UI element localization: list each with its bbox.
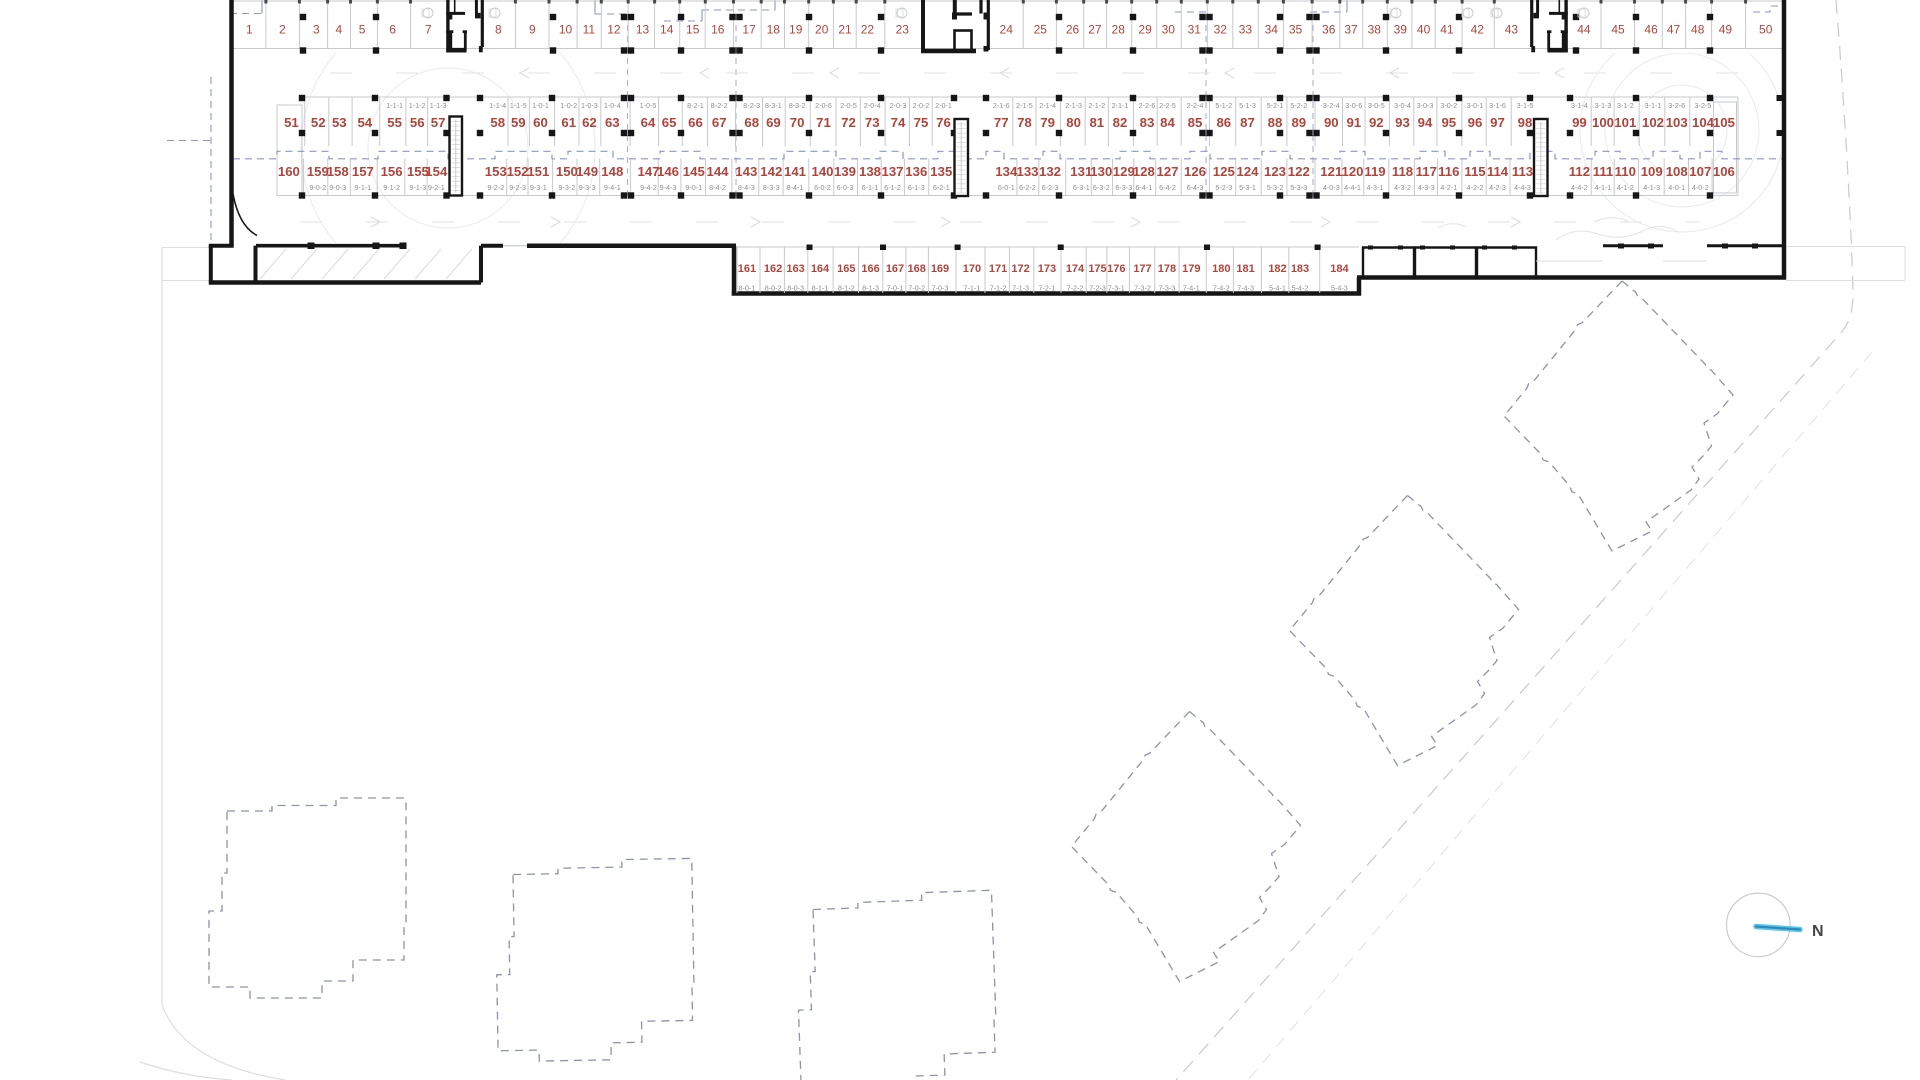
svg-text:131: 131 [1070, 164, 1092, 179]
svg-text:2-2-5: 2-2-5 [1159, 101, 1176, 110]
svg-text:160: 160 [278, 164, 300, 179]
svg-text:7-0-2: 7-0-2 [908, 284, 925, 293]
svg-text:3: 3 [313, 23, 320, 37]
svg-text:3-1-5: 3-1-5 [1517, 101, 1534, 110]
svg-text:5: 5 [359, 23, 366, 37]
svg-text:106: 106 [1713, 164, 1735, 179]
svg-text:102: 102 [1642, 115, 1664, 130]
svg-text:2-1-2: 2-1-2 [1088, 101, 1105, 110]
svg-text:49: 49 [1719, 23, 1733, 37]
svg-text:55: 55 [387, 115, 402, 130]
svg-text:1-1-1: 1-1-1 [386, 101, 403, 110]
svg-text:5-2-3: 5-2-3 [1215, 183, 1232, 192]
svg-text:27: 27 [1088, 23, 1102, 37]
svg-text:8-4-2: 8-4-2 [709, 183, 726, 192]
svg-text:101: 101 [1614, 115, 1636, 130]
svg-text:1-1-2: 1-1-2 [409, 101, 426, 110]
svg-text:7-4-2: 7-4-2 [1213, 284, 1230, 293]
svg-text:6-0-3: 6-0-3 [837, 183, 854, 192]
svg-text:8-0-3: 8-0-3 [787, 284, 804, 293]
svg-text:23: 23 [896, 23, 910, 37]
svg-text:6-3-3: 6-3-3 [1115, 183, 1132, 192]
svg-text:1-1-3: 1-1-3 [430, 101, 447, 110]
svg-text:76: 76 [936, 115, 951, 130]
svg-text:9-4-3: 9-4-3 [660, 183, 677, 192]
svg-text:149: 149 [576, 164, 598, 179]
svg-text:4-0-1: 4-0-1 [1668, 183, 1685, 192]
svg-text:3-1-1: 3-1-1 [1645, 101, 1662, 110]
svg-text:7-2-1: 7-2-1 [1039, 284, 1056, 293]
svg-text:13: 13 [636, 23, 650, 37]
svg-text:9: 9 [529, 23, 536, 37]
svg-text:1-0-1: 1-0-1 [532, 101, 549, 110]
svg-text:112: 112 [1569, 164, 1590, 179]
svg-text:26: 26 [1066, 23, 1080, 37]
svg-text:1: 1 [246, 23, 253, 37]
svg-text:68: 68 [744, 115, 759, 130]
svg-text:48: 48 [1691, 23, 1705, 37]
svg-text:59: 59 [511, 115, 526, 130]
svg-text:47: 47 [1667, 23, 1681, 37]
svg-text:97: 97 [1490, 115, 1505, 130]
svg-text:82: 82 [1113, 115, 1128, 130]
svg-text:9-0-1: 9-0-1 [685, 183, 702, 192]
svg-text:111: 111 [1593, 164, 1614, 179]
svg-text:9-2-3: 9-2-3 [509, 183, 526, 192]
svg-text:56: 56 [410, 115, 425, 130]
svg-text:29: 29 [1138, 23, 1152, 37]
svg-text:6-2-3: 6-2-3 [1042, 183, 1059, 192]
svg-text:156: 156 [381, 164, 403, 179]
svg-text:182: 182 [1268, 263, 1286, 275]
svg-text:113: 113 [1512, 164, 1533, 179]
svg-text:140: 140 [811, 164, 833, 179]
svg-text:2-0-3: 2-0-3 [890, 101, 907, 110]
svg-text:8-4-1: 8-4-1 [787, 183, 804, 192]
svg-text:65: 65 [662, 115, 677, 130]
svg-text:119: 119 [1364, 164, 1385, 179]
svg-text:46: 46 [1644, 23, 1658, 37]
svg-text:109: 109 [1641, 164, 1663, 179]
svg-text:5-1-3: 5-1-3 [1239, 101, 1256, 110]
svg-text:17: 17 [742, 23, 756, 37]
svg-text:2-1-1: 2-1-1 [1112, 101, 1129, 110]
svg-text:167: 167 [886, 263, 904, 275]
svg-text:6: 6 [389, 23, 396, 37]
svg-text:164: 164 [811, 263, 830, 275]
svg-text:121: 121 [1320, 164, 1342, 179]
svg-text:3-1-4: 3-1-4 [1571, 101, 1588, 110]
svg-text:114: 114 [1487, 164, 1509, 179]
svg-text:4-0-3: 4-0-3 [1323, 183, 1340, 192]
svg-text:7-1-1: 7-1-1 [964, 284, 981, 293]
svg-text:174: 174 [1066, 263, 1085, 275]
svg-text:12: 12 [607, 23, 621, 37]
svg-text:11: 11 [583, 23, 596, 37]
svg-text:39: 39 [1394, 23, 1408, 37]
svg-text:157: 157 [352, 164, 374, 179]
svg-text:8: 8 [495, 23, 502, 37]
svg-text:95: 95 [1441, 115, 1456, 130]
svg-text:5-3-2: 5-3-2 [1267, 183, 1284, 192]
svg-text:3-2-6: 3-2-6 [1668, 101, 1685, 110]
svg-text:128: 128 [1133, 164, 1155, 179]
svg-text:60: 60 [533, 115, 548, 130]
svg-text:58: 58 [490, 115, 505, 130]
svg-text:6-2-2: 6-2-2 [1019, 183, 1036, 192]
svg-text:9-2-2: 9-2-2 [487, 183, 504, 192]
svg-text:37: 37 [1344, 23, 1358, 37]
svg-text:179: 179 [1182, 263, 1200, 275]
svg-text:3-2-5: 3-2-5 [1695, 101, 1712, 110]
svg-text:57: 57 [431, 115, 446, 130]
svg-text:24: 24 [1000, 23, 1014, 37]
svg-text:116: 116 [1438, 164, 1459, 179]
svg-text:9-3-3: 9-3-3 [579, 183, 596, 192]
svg-text:7: 7 [425, 23, 432, 37]
svg-text:176: 176 [1107, 263, 1125, 275]
svg-text:5-2-2: 5-2-2 [1290, 101, 1307, 110]
svg-text:166: 166 [861, 263, 879, 275]
svg-text:8-3-3: 8-3-3 [763, 183, 780, 192]
svg-text:137: 137 [881, 164, 903, 179]
svg-text:52: 52 [311, 115, 326, 130]
svg-text:163: 163 [786, 263, 804, 275]
svg-text:110: 110 [1615, 164, 1636, 179]
svg-text:9-2-1: 9-2-1 [428, 183, 445, 192]
svg-text:5-3-1: 5-3-1 [1239, 183, 1256, 192]
svg-text:15: 15 [686, 23, 700, 37]
svg-text:153: 153 [485, 164, 507, 179]
svg-text:1-0-3: 1-0-3 [581, 101, 598, 110]
svg-text:7-1-3: 7-1-3 [1012, 284, 1029, 293]
svg-text:3-0-3: 3-0-3 [1417, 101, 1434, 110]
svg-text:108: 108 [1666, 164, 1688, 179]
svg-text:125: 125 [1213, 164, 1235, 179]
svg-text:127: 127 [1156, 164, 1178, 179]
svg-text:180: 180 [1212, 263, 1230, 275]
svg-text:85: 85 [1188, 115, 1203, 130]
svg-text:10: 10 [559, 23, 573, 37]
svg-text:2-1-5: 2-1-5 [1016, 101, 1033, 110]
svg-text:6-1-1: 6-1-1 [862, 183, 879, 192]
svg-text:66: 66 [688, 115, 703, 130]
svg-text:2-1-6: 2-1-6 [993, 101, 1010, 110]
svg-text:7-4-3: 7-4-3 [1237, 284, 1254, 293]
svg-text:9-0-3: 9-0-3 [329, 183, 346, 192]
svg-text:134: 134 [995, 164, 1018, 179]
svg-text:43: 43 [1505, 23, 1519, 37]
svg-text:7-2-2: 7-2-2 [1067, 284, 1084, 293]
svg-text:4-3-3: 4-3-3 [1418, 183, 1435, 192]
svg-text:99: 99 [1572, 115, 1587, 130]
svg-text:105: 105 [1713, 115, 1735, 130]
svg-text:104: 104 [1692, 115, 1715, 130]
svg-text:2-0-5: 2-0-5 [840, 101, 857, 110]
svg-text:2: 2 [279, 23, 286, 37]
svg-text:9-4-2: 9-4-2 [640, 183, 657, 192]
svg-text:4-4-3: 4-4-3 [1514, 183, 1531, 192]
svg-text:150: 150 [556, 164, 578, 179]
svg-text:7-1-2: 7-1-2 [990, 284, 1007, 293]
svg-text:8-2-3: 8-2-3 [743, 101, 760, 110]
svg-text:33: 33 [1239, 23, 1253, 37]
svg-text:6-0-2: 6-0-2 [814, 183, 831, 192]
svg-text:14: 14 [660, 23, 674, 37]
svg-text:64: 64 [641, 115, 656, 130]
svg-text:2-0-4: 2-0-4 [864, 101, 881, 110]
svg-text:93: 93 [1395, 115, 1410, 130]
svg-text:40: 40 [1417, 23, 1431, 37]
svg-text:80: 80 [1066, 115, 1081, 130]
svg-text:42: 42 [1471, 23, 1485, 37]
svg-text:136: 136 [905, 164, 927, 179]
svg-text:9-3-2: 9-3-2 [559, 183, 576, 192]
svg-text:120: 120 [1341, 164, 1363, 179]
svg-text:175: 175 [1088, 263, 1106, 275]
svg-text:3-0-4: 3-0-4 [1394, 101, 1411, 110]
svg-text:123: 123 [1264, 164, 1286, 179]
svg-text:4-0-2: 4-0-2 [1692, 183, 1709, 192]
svg-text:38: 38 [1368, 23, 1382, 37]
svg-text:6-1-3: 6-1-3 [908, 183, 925, 192]
svg-text:6-4-1: 6-4-1 [1135, 183, 1152, 192]
svg-text:100: 100 [1592, 115, 1614, 130]
svg-text:31: 31 [1188, 23, 1202, 37]
svg-text:168: 168 [908, 263, 926, 275]
svg-text:44: 44 [1577, 23, 1591, 37]
svg-text:132: 132 [1039, 164, 1061, 179]
svg-text:90: 90 [1324, 115, 1339, 130]
svg-text:6-3-2: 6-3-2 [1093, 183, 1110, 192]
svg-text:169: 169 [931, 263, 949, 275]
svg-text:7-3-1: 7-3-1 [1108, 284, 1125, 293]
svg-text:3-1-6: 3-1-6 [1489, 101, 1506, 110]
svg-text:19: 19 [789, 23, 803, 37]
svg-text:4-1-1: 4-1-1 [1595, 183, 1612, 192]
svg-text:4-2-3: 4-2-3 [1489, 183, 1506, 192]
svg-text:117: 117 [1416, 164, 1437, 179]
svg-text:9-0-2: 9-0-2 [309, 183, 326, 192]
svg-text:61: 61 [561, 115, 576, 130]
svg-text:50: 50 [1759, 23, 1773, 37]
svg-text:2-0-2: 2-0-2 [913, 101, 930, 110]
svg-text:2-0-6: 2-0-6 [815, 101, 832, 110]
svg-text:63: 63 [605, 115, 620, 130]
svg-text:146: 146 [657, 164, 679, 179]
svg-text:88: 88 [1268, 115, 1283, 130]
svg-text:5-3-3: 5-3-3 [1290, 183, 1307, 192]
svg-text:172: 172 [1011, 263, 1029, 275]
svg-text:6-0-1: 6-0-1 [998, 183, 1015, 192]
svg-text:71: 71 [816, 115, 831, 130]
svg-text:4-1-3: 4-1-3 [1643, 183, 1660, 192]
svg-text:77: 77 [994, 115, 1009, 130]
svg-text:28: 28 [1112, 23, 1126, 37]
svg-text:72: 72 [841, 115, 856, 130]
svg-text:70: 70 [790, 115, 805, 130]
svg-text:53: 53 [332, 115, 347, 130]
svg-text:3-0-6: 3-0-6 [1345, 101, 1362, 110]
svg-text:3-2-4: 3-2-4 [1323, 101, 1340, 110]
svg-text:4-4-2: 4-4-2 [1571, 183, 1588, 192]
svg-text:67: 67 [712, 115, 727, 130]
svg-text:9-1-3: 9-1-3 [410, 183, 427, 192]
svg-text:3-0-1: 3-0-1 [1467, 101, 1484, 110]
svg-text:2-1-3: 2-1-3 [1065, 101, 1082, 110]
svg-text:84: 84 [1160, 115, 1175, 130]
svg-text:4-2-1: 4-2-1 [1440, 183, 1457, 192]
svg-text:152: 152 [507, 164, 529, 179]
svg-text:2-1-4: 2-1-4 [1039, 101, 1056, 110]
svg-text:7-0-3: 7-0-3 [932, 284, 949, 293]
svg-text:35: 35 [1289, 23, 1303, 37]
svg-text:107: 107 [1689, 164, 1711, 179]
svg-text:86: 86 [1216, 115, 1231, 130]
svg-text:162: 162 [764, 263, 782, 275]
svg-text:25: 25 [1034, 23, 1048, 37]
svg-text:98: 98 [1518, 115, 1533, 130]
svg-text:5-4-1: 5-4-1 [1269, 284, 1286, 293]
svg-text:6-4-2: 6-4-2 [1159, 183, 1176, 192]
svg-text:N: N [1812, 923, 1824, 940]
svg-text:8-2-1: 8-2-1 [687, 101, 704, 110]
svg-text:129: 129 [1113, 164, 1135, 179]
svg-text:151: 151 [527, 164, 549, 179]
svg-text:81: 81 [1089, 115, 1104, 130]
svg-text:30: 30 [1162, 23, 1176, 37]
svg-text:4-4-1: 4-4-1 [1344, 183, 1361, 192]
svg-text:158: 158 [327, 164, 349, 179]
svg-text:7-4-1: 7-4-1 [1183, 284, 1200, 293]
svg-text:3-1-3: 3-1-3 [1595, 101, 1612, 110]
svg-text:9-4-1: 9-4-1 [604, 183, 621, 192]
svg-text:45: 45 [1611, 23, 1625, 37]
svg-text:142: 142 [760, 164, 782, 179]
svg-text:143: 143 [735, 164, 757, 179]
svg-text:171: 171 [989, 263, 1007, 275]
svg-text:54: 54 [357, 115, 372, 130]
svg-text:94: 94 [1418, 115, 1433, 130]
svg-text:7-3-2: 7-3-2 [1134, 284, 1151, 293]
svg-text:5-4-3: 5-4-3 [1331, 284, 1348, 293]
svg-text:173: 173 [1038, 263, 1056, 275]
svg-text:4-1-2: 4-1-2 [1617, 183, 1634, 192]
svg-text:3-0-2: 3-0-2 [1440, 101, 1457, 110]
svg-text:1-1-4: 1-1-4 [489, 101, 506, 110]
svg-text:2-2-4: 2-2-4 [1187, 101, 1204, 110]
svg-text:92: 92 [1369, 115, 1384, 130]
svg-text:79: 79 [1040, 115, 1055, 130]
svg-text:139: 139 [834, 164, 856, 179]
svg-text:161: 161 [738, 263, 756, 275]
svg-text:69: 69 [766, 115, 781, 130]
svg-text:148: 148 [601, 164, 623, 179]
svg-text:9-1-1: 9-1-1 [355, 183, 372, 192]
svg-text:177: 177 [1133, 263, 1151, 275]
svg-text:2-0-1: 2-0-1 [935, 101, 952, 110]
svg-text:130: 130 [1090, 164, 1112, 179]
svg-text:8-1-3: 8-1-3 [862, 284, 879, 293]
svg-text:3-1-2: 3-1-2 [1617, 101, 1634, 110]
svg-text:184: 184 [1330, 263, 1349, 275]
svg-text:170: 170 [963, 263, 981, 275]
svg-text:4-3-2: 4-3-2 [1394, 183, 1411, 192]
svg-text:18: 18 [767, 23, 781, 37]
svg-text:118: 118 [1392, 164, 1413, 179]
svg-text:5-1-2: 5-1-2 [1215, 101, 1232, 110]
svg-text:96: 96 [1468, 115, 1483, 130]
svg-text:8-0-1: 8-0-1 [739, 284, 756, 293]
svg-text:144: 144 [706, 164, 729, 179]
svg-text:7-0-1: 7-0-1 [887, 284, 904, 293]
svg-text:5-2-1: 5-2-1 [1267, 101, 1284, 110]
svg-text:20: 20 [815, 23, 829, 37]
svg-text:181: 181 [1236, 263, 1254, 275]
svg-text:165: 165 [837, 263, 855, 275]
svg-text:6-1-2: 6-1-2 [884, 183, 901, 192]
svg-text:122: 122 [1288, 164, 1310, 179]
svg-text:32: 32 [1214, 23, 1228, 37]
svg-text:34: 34 [1265, 23, 1279, 37]
svg-text:6-4-3: 6-4-3 [1187, 183, 1204, 192]
svg-text:21: 21 [838, 23, 852, 37]
svg-text:133: 133 [1016, 164, 1038, 179]
svg-text:115: 115 [1464, 164, 1485, 179]
svg-text:91: 91 [1346, 115, 1361, 130]
svg-text:8-1-1: 8-1-1 [812, 284, 829, 293]
svg-text:78: 78 [1017, 115, 1032, 130]
svg-text:1-0-4: 1-0-4 [604, 101, 621, 110]
svg-text:74: 74 [891, 115, 906, 130]
svg-text:3-0-5: 3-0-5 [1368, 101, 1385, 110]
svg-text:7-2-3: 7-2-3 [1089, 284, 1106, 293]
svg-text:75: 75 [914, 115, 929, 130]
svg-text:154: 154 [425, 164, 448, 179]
svg-text:138: 138 [859, 164, 881, 179]
svg-text:8-0-2: 8-0-2 [765, 284, 782, 293]
svg-text:9-1-2: 9-1-2 [383, 183, 400, 192]
svg-text:87: 87 [1240, 115, 1255, 130]
svg-text:8-1-2: 8-1-2 [838, 284, 855, 293]
svg-text:126: 126 [1184, 164, 1206, 179]
svg-text:135: 135 [930, 164, 952, 179]
svg-text:4-3-1: 4-3-1 [1367, 183, 1384, 192]
svg-text:2-2-6: 2-2-6 [1139, 101, 1156, 110]
svg-text:36: 36 [1322, 23, 1336, 37]
svg-text:4: 4 [336, 23, 343, 37]
svg-text:6-2-1: 6-2-1 [933, 183, 950, 192]
svg-text:16: 16 [711, 23, 725, 37]
svg-text:8-3-2: 8-3-2 [789, 101, 806, 110]
svg-text:73: 73 [865, 115, 880, 130]
svg-text:183: 183 [1291, 263, 1309, 275]
svg-text:8-2-2: 8-2-2 [711, 101, 728, 110]
svg-text:8-4-3: 8-4-3 [738, 183, 755, 192]
svg-text:1-0-2: 1-0-2 [560, 101, 577, 110]
svg-text:159: 159 [307, 164, 329, 179]
svg-text:41: 41 [1440, 23, 1454, 37]
svg-text:145: 145 [683, 164, 705, 179]
svg-text:1-0-5: 1-0-5 [640, 101, 657, 110]
svg-text:7-3-3: 7-3-3 [1159, 284, 1176, 293]
svg-text:5-4-2: 5-4-2 [1292, 284, 1309, 293]
svg-text:89: 89 [1291, 115, 1306, 130]
svg-text:8-3-1: 8-3-1 [765, 101, 782, 110]
svg-text:103: 103 [1666, 115, 1688, 130]
svg-text:83: 83 [1140, 115, 1155, 130]
svg-text:9-3-1: 9-3-1 [530, 183, 547, 192]
